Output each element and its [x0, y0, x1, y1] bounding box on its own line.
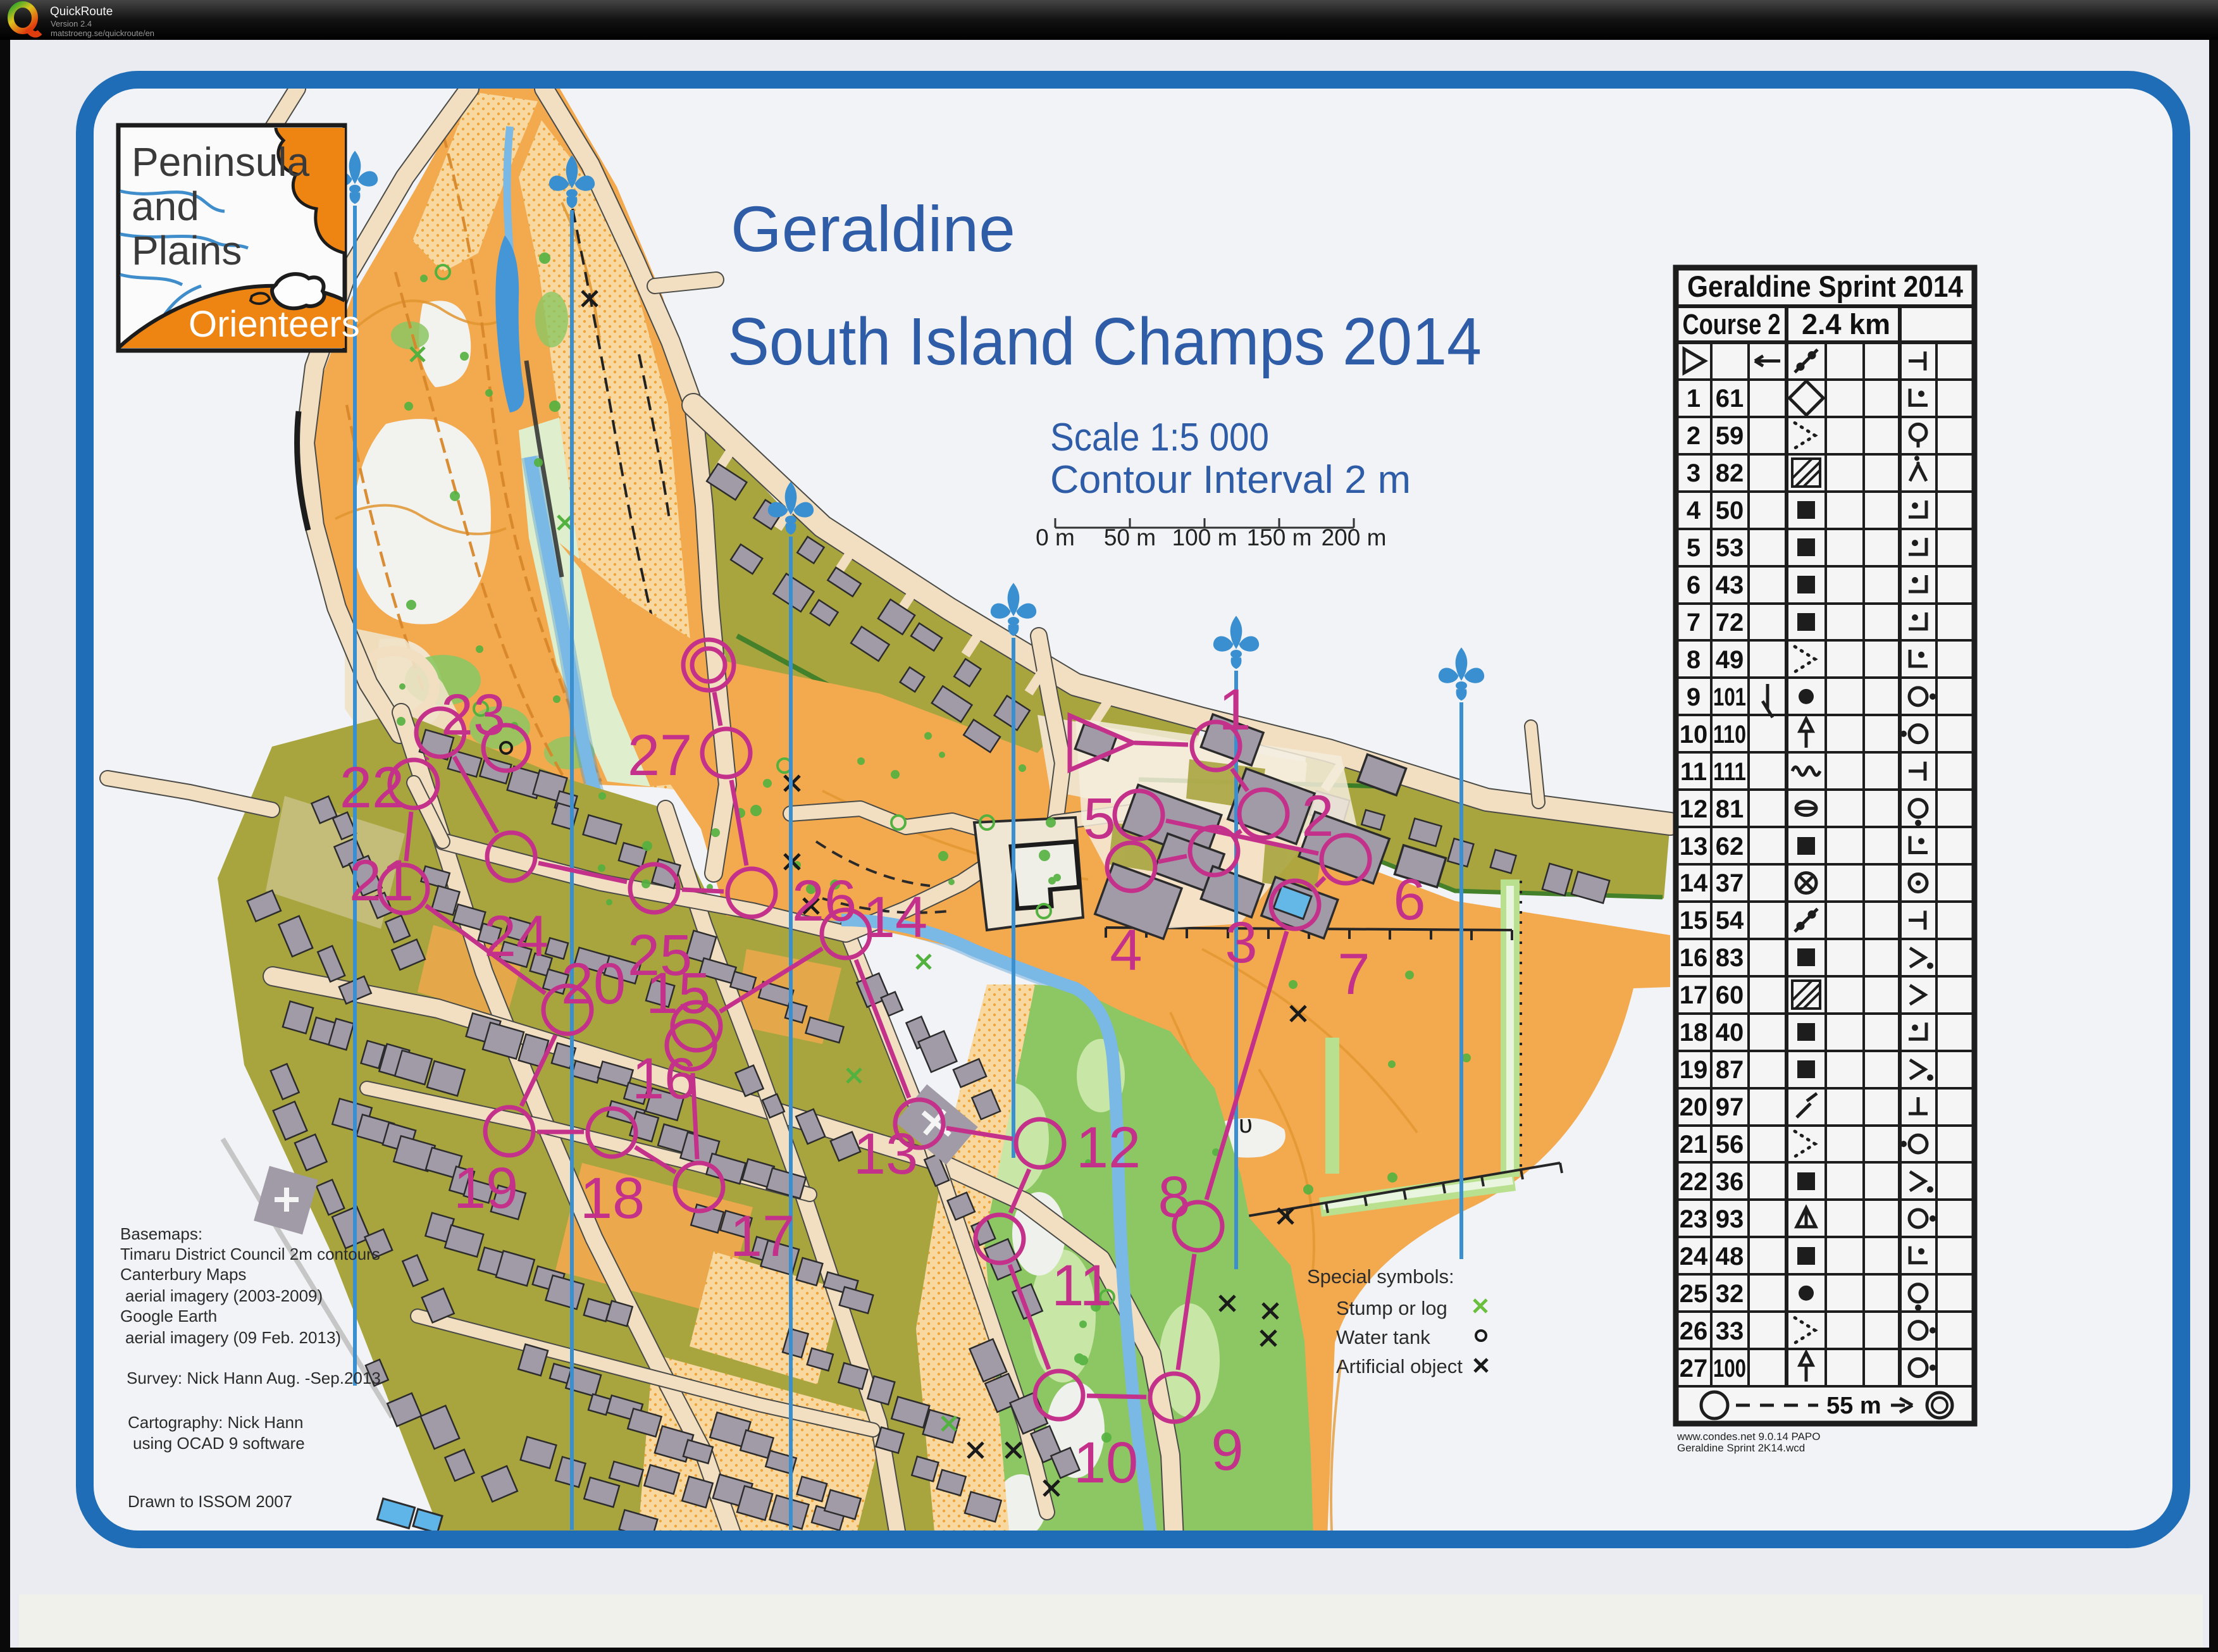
svg-text:54: 54	[1716, 907, 1744, 935]
svg-text:19: 19	[1680, 1056, 1708, 1084]
svg-text:17: 17	[1680, 981, 1708, 1009]
svg-text:36: 36	[1716, 1168, 1744, 1196]
svg-text:14: 14	[1680, 869, 1708, 897]
svg-text:16: 16	[1680, 944, 1708, 972]
svg-text:17: 17	[730, 1204, 795, 1269]
svg-text:13: 13	[1680, 833, 1708, 860]
svg-text:Survey: Nick Hann Aug. -Sep.20: Survey: Nick Hann Aug. -Sep.2013	[127, 1369, 381, 1388]
svg-text:Timaru District Council 2m con: Timaru District Council 2m contours	[120, 1245, 380, 1264]
svg-text:50 m: 50 m	[1104, 525, 1156, 550]
svg-text:9: 9	[1211, 1418, 1243, 1482]
svg-text:21: 21	[349, 848, 414, 913]
svg-text:40: 40	[1716, 1019, 1744, 1046]
svg-text:Artificial object: Artificial object	[1336, 1355, 1463, 1377]
svg-text:Peninsula: Peninsula	[132, 139, 310, 185]
svg-text:81: 81	[1716, 795, 1744, 823]
svg-text:26: 26	[792, 869, 857, 933]
svg-text:50: 50	[1716, 497, 1744, 525]
svg-text:Geraldine Sprint 2K14.wcd: Geraldine Sprint 2K14.wcd	[1677, 1442, 1805, 1454]
svg-text:27: 27	[628, 723, 692, 788]
svg-text:20: 20	[1680, 1093, 1708, 1121]
svg-text:93: 93	[1716, 1205, 1744, 1233]
svg-text:Orienteers: Orienteers	[189, 304, 360, 345]
svg-text:6: 6	[1687, 571, 1701, 599]
svg-text:25: 25	[628, 923, 692, 988]
svg-text:5: 5	[1687, 534, 1701, 562]
svg-text:Canterbury Maps: Canterbury Maps	[120, 1265, 246, 1284]
svg-text:24: 24	[1680, 1243, 1708, 1270]
svg-text:26: 26	[1680, 1317, 1708, 1345]
svg-text:101: 101	[1713, 683, 1746, 711]
svg-text:19: 19	[454, 1156, 518, 1220]
svg-text:12: 12	[1076, 1115, 1141, 1180]
svg-text:15: 15	[1680, 907, 1708, 935]
svg-text:4: 4	[1110, 918, 1142, 983]
svg-text:27: 27	[1680, 1355, 1708, 1382]
svg-text:www.condes.net 9.0.14 PAPO: www.condes.net 9.0.14 PAPO	[1676, 1431, 1820, 1443]
svg-text:23: 23	[441, 683, 505, 747]
svg-text:3: 3	[1687, 459, 1701, 487]
svg-text:25: 25	[1680, 1280, 1708, 1308]
svg-text:82: 82	[1716, 459, 1744, 487]
svg-text:using OCAD 9 software: using OCAD 9 software	[133, 1434, 305, 1453]
svg-text:59: 59	[1716, 422, 1744, 450]
svg-text:32: 32	[1716, 1280, 1744, 1308]
svg-text:62: 62	[1716, 833, 1744, 860]
svg-text:60: 60	[1716, 981, 1744, 1009]
svg-text:QuickRoute: QuickRoute	[50, 5, 113, 18]
svg-text:Geraldine Sprint 2014: Geraldine Sprint 2014	[1687, 270, 1963, 303]
svg-text:100 m: 100 m	[1172, 525, 1237, 550]
svg-text:16: 16	[632, 1046, 697, 1111]
svg-text:200 m: 200 m	[1322, 525, 1387, 550]
svg-text:21: 21	[1680, 1131, 1708, 1158]
svg-text:61: 61	[1716, 385, 1744, 413]
svg-text:83: 83	[1716, 944, 1744, 972]
svg-text:3: 3	[1225, 910, 1257, 975]
svg-text:18: 18	[1680, 1019, 1708, 1046]
svg-text:72: 72	[1716, 609, 1744, 637]
svg-text:Contour Interval 2 m: Contour Interval 2 m	[1050, 458, 1411, 502]
svg-text:11: 11	[1051, 1253, 1112, 1318]
svg-text:1: 1	[1218, 678, 1251, 742]
svg-text:22: 22	[340, 755, 404, 820]
svg-text:2.4 km: 2.4 km	[1802, 308, 1890, 340]
svg-text:2: 2	[1301, 784, 1334, 848]
svg-text:7: 7	[1687, 609, 1701, 637]
svg-text:37: 37	[1716, 869, 1744, 897]
svg-text:22: 22	[1680, 1168, 1708, 1196]
svg-text:49: 49	[1716, 646, 1744, 674]
svg-text:matstroeng.se/quickroute/en: matstroeng.se/quickroute/en	[51, 28, 154, 38]
svg-text:South Island Champs 2014: South Island Champs 2014	[728, 304, 1482, 379]
svg-text:12: 12	[1680, 795, 1708, 823]
svg-text:Drawn to ISSOM 2007: Drawn to ISSOM 2007	[128, 1492, 292, 1511]
svg-text:43: 43	[1716, 571, 1744, 599]
svg-text:4: 4	[1687, 497, 1701, 525]
svg-text:Google Earth: Google Earth	[120, 1307, 217, 1326]
svg-text:Plains: Plains	[132, 228, 242, 273]
svg-text:56: 56	[1716, 1131, 1744, 1158]
svg-text:7: 7	[1337, 942, 1370, 1007]
svg-text:Course 2: Course 2	[1683, 308, 1781, 340]
svg-text:Basemaps:: Basemaps:	[120, 1224, 202, 1243]
svg-text:87: 87	[1716, 1056, 1744, 1084]
svg-text:8: 8	[1687, 646, 1701, 674]
svg-text:Special symbols:: Special symbols:	[1307, 1265, 1454, 1288]
svg-text:υ: υ	[1239, 1110, 1253, 1138]
svg-text:8: 8	[1158, 1165, 1190, 1229]
svg-text:Stump or log: Stump or log	[1336, 1297, 1447, 1319]
svg-text:Water tank: Water tank	[1336, 1326, 1430, 1348]
svg-text:0 m: 0 m	[1036, 525, 1075, 550]
svg-text:9: 9	[1687, 683, 1701, 711]
svg-text:aerial imagery (09 Feb. 2013): aerial imagery (09 Feb. 2013)	[125, 1328, 341, 1347]
svg-text:11: 11	[1680, 758, 1707, 786]
svg-text:5: 5	[1083, 786, 1115, 851]
svg-text:aerial imagery (2003-2009): aerial imagery (2003-2009)	[125, 1286, 323, 1305]
svg-text:1: 1	[1687, 385, 1701, 413]
svg-text:18: 18	[580, 1166, 645, 1231]
svg-text:6: 6	[1393, 867, 1425, 932]
svg-text:10: 10	[1074, 1431, 1138, 1495]
svg-text:110: 110	[1713, 721, 1746, 748]
svg-text:Scale 1:5 000: Scale 1:5 000	[1050, 416, 1269, 459]
svg-text:24: 24	[484, 904, 548, 969]
svg-text:Cartography: Nick Hann: Cartography: Nick Hann	[128, 1413, 303, 1432]
svg-text:48: 48	[1716, 1243, 1744, 1270]
svg-text:33: 33	[1716, 1317, 1744, 1345]
svg-text:10: 10	[1680, 721, 1708, 748]
svg-text:13: 13	[853, 1122, 918, 1186]
svg-text:and: and	[132, 183, 199, 229]
svg-text:14: 14	[863, 885, 927, 950]
svg-text:55 m: 55 m	[1826, 1393, 1881, 1419]
svg-text:150 m: 150 m	[1247, 525, 1312, 550]
svg-text:Geraldine: Geraldine	[731, 193, 1015, 265]
svg-text:23: 23	[1680, 1205, 1708, 1233]
svg-text:53: 53	[1716, 534, 1744, 562]
svg-text:20: 20	[561, 952, 626, 1016]
svg-text:Version 2.4: Version 2.4	[51, 19, 92, 28]
svg-text:111: 111	[1713, 758, 1746, 786]
svg-text:97: 97	[1716, 1093, 1744, 1121]
svg-text:100: 100	[1713, 1355, 1746, 1382]
svg-text:2: 2	[1687, 422, 1701, 450]
